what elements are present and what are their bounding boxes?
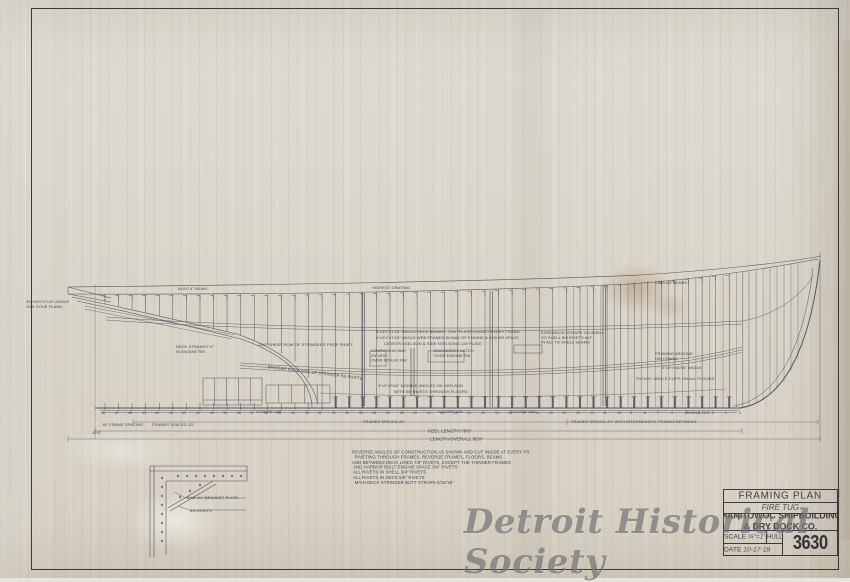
annotation: 2½"x2½" ANGLE CLIPS ON ALL FLOORS	[636, 377, 714, 382]
frame-number: 18	[508, 411, 512, 415]
frame-number: 38	[237, 411, 241, 415]
annotation: WITH 5/8 RIVETS THROUGH FLOORS	[394, 390, 468, 395]
frame-number: 5	[685, 411, 687, 415]
annotation: FRAMES SPACED 20"	[152, 423, 194, 428]
frame-number: 16	[535, 411, 539, 415]
annotation: COMPANION WAY 4'6"x5'6" OVER BOILER RM	[371, 349, 407, 363]
annotation: FRAMES SPACED 20"	[363, 420, 405, 425]
annotation: 6"x6"x⅜" BRACKET PLATE	[187, 496, 238, 501]
drawing-title: FRAMING PLAN	[739, 490, 822, 501]
frame-number: 27	[386, 411, 390, 415]
watermark: Detroit Historical Society	[464, 502, 850, 582]
annotation: CENTER KEELSON & SIDE KEELSONS 12# PLATE	[384, 342, 482, 347]
annotation: HIGHEST GRATING	[372, 286, 410, 291]
annotation: LENGTH OVERALL 85'9"	[430, 437, 483, 442]
frame-number: 42	[182, 411, 186, 415]
frame-number: 14	[562, 411, 566, 415]
frame-number: 28	[372, 411, 376, 415]
annotation: MACHINERY HATCH OVER ENGINE RM	[434, 349, 474, 358]
annotation: DECK STRAKES ⅜" IN ENGINE RM	[176, 345, 214, 354]
frame-number: 17	[522, 411, 526, 415]
rail-line	[68, 256, 821, 287]
frame-number: 11	[603, 411, 607, 415]
frame-number: 3	[712, 411, 714, 415]
frame-number: 9	[630, 411, 632, 415]
frame-number: 21	[467, 411, 471, 415]
annotation: 3"x3"x7/16" DOUBLE ANGLES ON KEELSON	[378, 384, 463, 389]
frame-number: 1	[739, 411, 741, 415]
annotation: 6"x3½"x7/16" ANGLE WEB FRAMES IN WAY OF …	[376, 336, 519, 341]
annotation: FRAMING AROUND HATCHWAY	[655, 352, 693, 361]
scanned-drawing-page: { "colors": { "paper": "#d9d4c8", "ink":…	[0, 0, 850, 578]
frame-number: 32	[318, 411, 322, 415]
annotation: ONE SHEER ROW OF STRINGERS PROP SHAFT	[258, 343, 353, 348]
frame-number: 45	[142, 411, 146, 415]
frame-number: 26	[400, 411, 404, 415]
frame-number: 35	[277, 411, 281, 415]
frame-number: 2	[725, 411, 727, 415]
frame-number: 37	[250, 411, 254, 415]
frame-number: 30	[345, 411, 349, 415]
frame-number: 46	[128, 411, 132, 415]
frame-number: 41	[196, 411, 200, 415]
construction-notes: REVERSE ANGLES OF CONSTRUCTION AS SHOWN …	[352, 450, 531, 486]
annotation: SIMILAR BEAMS	[655, 281, 687, 286]
annotation: 3"x2½"x5/16" ANGLE	[662, 366, 702, 371]
frame-number: 44	[155, 411, 159, 415]
frame-number: 48	[101, 411, 105, 415]
frame-number: 13	[576, 411, 580, 415]
frame-number: 23	[440, 411, 444, 415]
frame-number: 29	[359, 411, 363, 415]
frame-number: 19	[495, 411, 499, 415]
annotation: 5"x3½"x7/16" ANGLE DECK BEAMS - 7/16" PL…	[376, 330, 520, 335]
stem-curve	[740, 260, 820, 408]
frame-number: 22	[454, 411, 458, 415]
frame-number: 7	[657, 411, 659, 415]
frame-number: 33	[305, 411, 309, 415]
frame-number: 24	[427, 411, 431, 415]
frame-number: 34	[291, 411, 295, 415]
annotation: 5/8 RIVETS	[190, 509, 212, 514]
annotation: EXPANSION STRAPS ON SHELL TO SHELL 5/8 R…	[541, 331, 604, 345]
frame-number: 43	[169, 411, 173, 415]
annotation: ALSO 4" BEAM	[178, 287, 207, 292]
frame-number: 31	[332, 411, 336, 415]
frame-number: 40	[210, 411, 214, 415]
frame-number: 20	[481, 411, 485, 415]
annotation: 16" FRAME SPACING	[102, 423, 143, 428]
frame-number: 4	[698, 411, 700, 415]
annotation: FRAMES SPACED 20" WITH INTERMEDIATE FRAM…	[571, 420, 697, 425]
frame-number: 6	[671, 411, 673, 415]
frame-number: 8	[644, 411, 646, 415]
frame-number: 12	[590, 411, 594, 415]
frame-number: 10	[617, 411, 621, 415]
frame-number: 36	[264, 411, 268, 415]
frame-number: 25	[413, 411, 417, 415]
annotation: 4½"x3½"x7/16" ANGLE OAK COVE PLANK	[26, 300, 69, 309]
frame-number: 15	[549, 411, 553, 415]
frame-number: 39	[223, 411, 227, 415]
annotation: KEEL LENGTH 78'0"	[428, 429, 472, 434]
annotation: 10'6"	[92, 431, 101, 436]
frame-number: 47	[115, 411, 119, 415]
